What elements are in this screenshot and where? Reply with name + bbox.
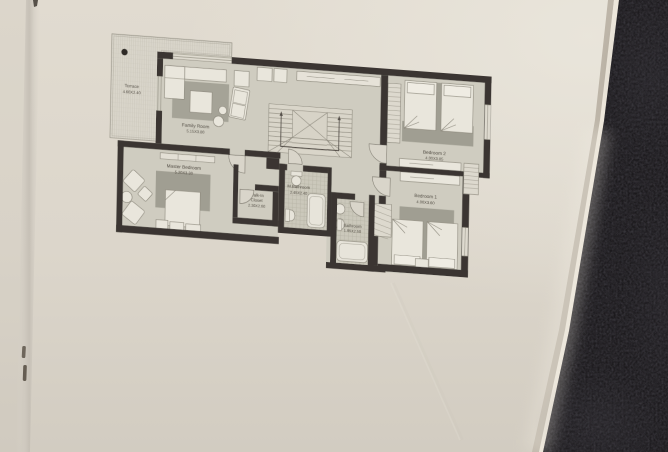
svg-text:Closet: Closet (251, 197, 264, 203)
